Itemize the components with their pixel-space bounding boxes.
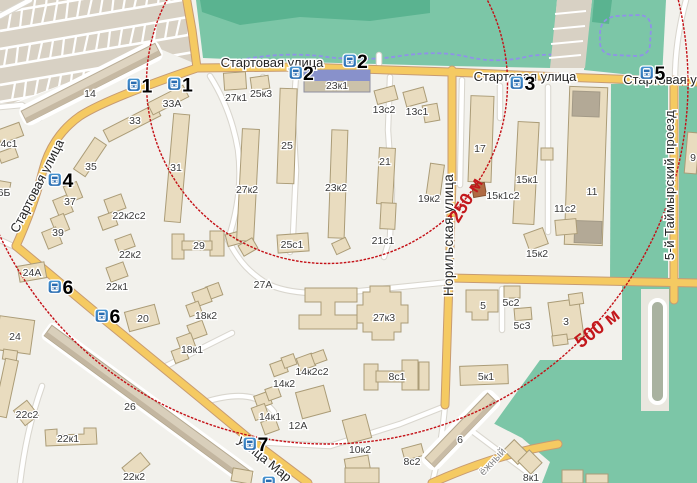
svg-text:8к1: 8к1	[523, 472, 539, 483]
svg-text:33: 33	[129, 115, 141, 127]
svg-text:8с1: 8с1	[389, 371, 406, 383]
svg-text:26: 26	[124, 401, 136, 413]
svg-text:5: 5	[480, 300, 486, 312]
svg-text:27к1: 27к1	[225, 92, 247, 104]
svg-text:10к2: 10к2	[349, 444, 371, 456]
svg-text:22к1: 22к1	[106, 281, 128, 293]
svg-text:22к2с2: 22к2с2	[112, 210, 145, 222]
svg-text:23к2: 23к2	[325, 182, 347, 194]
svg-text:Норильская улица: Норильская улица	[441, 174, 456, 296]
svg-text:9: 9	[690, 152, 696, 164]
svg-text:22к1: 22к1	[57, 433, 79, 445]
svg-text:25с1: 25с1	[281, 239, 304, 251]
svg-text:5: 5	[655, 63, 666, 85]
svg-text:13с1: 13с1	[406, 106, 429, 118]
svg-text:3: 3	[525, 73, 536, 95]
svg-text:2: 2	[303, 63, 314, 85]
svg-text:22к2: 22к2	[119, 249, 141, 261]
svg-text:24: 24	[9, 331, 21, 343]
svg-text:13с2: 13с2	[373, 104, 396, 116]
svg-text:14к2с2: 14к2с2	[295, 366, 328, 378]
svg-text:19к2: 19к2	[418, 193, 440, 205]
svg-text:37: 37	[64, 196, 76, 208]
svg-text:5с3: 5с3	[514, 320, 531, 332]
svg-text:27А: 27А	[254, 279, 273, 291]
svg-text:14: 14	[84, 88, 96, 100]
svg-text:18к1: 18к1	[181, 344, 203, 356]
svg-text:1: 1	[182, 75, 193, 97]
svg-text:21с1: 21с1	[372, 235, 395, 247]
svg-text:18к2: 18к2	[195, 310, 217, 322]
svg-text:22к2: 22к2	[123, 471, 145, 483]
svg-text:11: 11	[587, 186, 598, 198]
svg-text:15к2: 15к2	[526, 248, 548, 260]
svg-text:4с1: 4с1	[1, 138, 18, 150]
svg-text:25: 25	[281, 140, 293, 152]
svg-text:5-й Таймырский проезд: 5-й Таймырский проезд	[662, 110, 677, 260]
svg-text:12А: 12А	[289, 420, 308, 432]
svg-text:27к2: 27к2	[236, 184, 258, 196]
svg-text:1: 1	[142, 76, 153, 98]
svg-text:17: 17	[474, 143, 486, 155]
svg-text:27к3: 27к3	[373, 312, 395, 324]
svg-text:4: 4	[63, 170, 74, 192]
svg-text:23к1: 23к1	[326, 80, 348, 92]
svg-text:25к3: 25к3	[250, 88, 272, 100]
svg-text:3: 3	[563, 316, 569, 328]
svg-text:6: 6	[110, 306, 121, 328]
svg-text:22с2: 22с2	[16, 409, 39, 421]
svg-text:31: 31	[170, 162, 182, 174]
svg-text:21: 21	[379, 156, 391, 168]
svg-text:6Б: 6Б	[0, 187, 10, 199]
svg-text:33А: 33А	[163, 98, 182, 110]
svg-text:35: 35	[85, 161, 97, 173]
svg-text:5к1: 5к1	[478, 371, 494, 383]
svg-text:6: 6	[63, 277, 74, 299]
svg-text:7: 7	[258, 434, 269, 456]
svg-text:5с2: 5с2	[503, 297, 520, 309]
svg-text:39: 39	[52, 227, 64, 239]
svg-text:24А: 24А	[23, 267, 42, 279]
svg-text:8с2: 8с2	[404, 456, 421, 468]
svg-text:11с2: 11с2	[554, 203, 576, 215]
svg-text:6: 6	[457, 434, 463, 446]
svg-text:2: 2	[357, 51, 368, 73]
svg-text:20: 20	[137, 313, 149, 325]
svg-text:15к1: 15к1	[516, 174, 538, 186]
svg-text:14к2: 14к2	[273, 378, 295, 390]
svg-text:29: 29	[193, 240, 205, 252]
svg-text:15к1с2: 15к1с2	[486, 190, 519, 202]
svg-text:14к1: 14к1	[259, 411, 281, 423]
